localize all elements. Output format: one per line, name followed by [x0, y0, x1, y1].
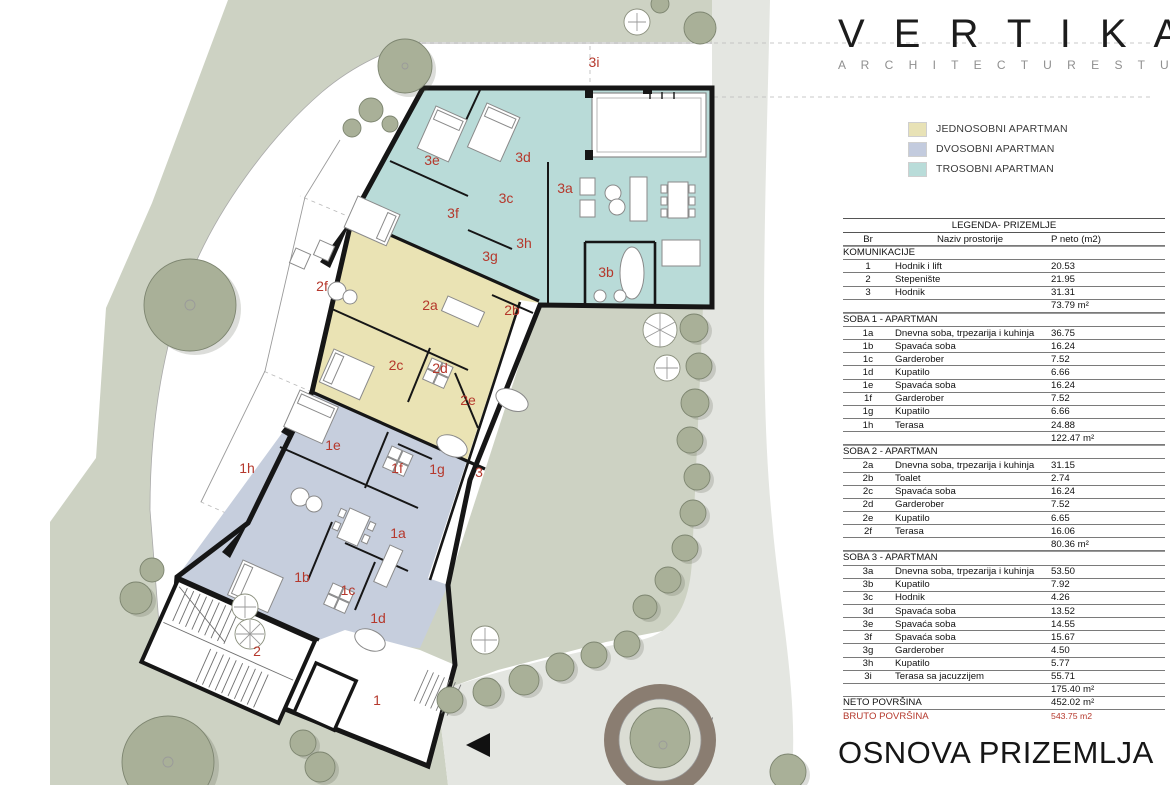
room-label-3: 3	[475, 464, 483, 480]
cell-room-id: 2d	[843, 499, 893, 510]
cell-room-area: 6.66	[1045, 406, 1165, 417]
cell-room-name: Kupatilo	[893, 406, 1045, 417]
cell-room-area: 4.26	[1045, 592, 1165, 603]
table-row: NETO POVRŠINA452.02 m²	[843, 697, 1165, 710]
cell-room-name: Garderober	[893, 645, 1045, 656]
jacuzzi-pool	[585, 88, 706, 160]
table-row: 2bToalet2.74	[843, 473, 1165, 486]
room-label-1b: 1b	[294, 569, 310, 585]
cell-room-name: Spavaća soba	[893, 632, 1045, 643]
cell-room-area: 31.31	[1045, 287, 1165, 298]
brand-logo: V E R T I K A L Λ	[838, 12, 1138, 56]
room-label-1f: 1f	[391, 460, 403, 476]
table-row: BRUTO POVRŠINA543.75 m2	[843, 710, 1165, 722]
cell-room-name: Spavaća soba	[893, 380, 1045, 391]
cell-room-name: Toalet	[893, 473, 1045, 484]
cell-room-id: 3e	[843, 619, 893, 630]
cell-room-id: 1d	[843, 367, 893, 378]
cell-room-area: 7.52	[1045, 393, 1165, 404]
total-value: 452.02 m²	[1045, 697, 1165, 708]
col-header-naziv: Naziv prostorije	[893, 234, 1045, 245]
cell-room-id: 1g	[843, 406, 893, 417]
table-row: 3eSpavaća soba14.55	[843, 618, 1165, 631]
table-row: 3bKupatilo7.92	[843, 579, 1165, 592]
cell-room-area: 36.75	[1045, 328, 1165, 339]
cell-room-id: 2	[843, 274, 893, 285]
room-label-3e: 3e	[424, 152, 440, 168]
room-label-1d: 1d	[370, 610, 386, 626]
apartment-type-legend: JEDNOSOBNI APARTMANDVOSOBNI APARTMANTROS…	[908, 119, 1068, 179]
cell-room-area: 55.71	[1045, 671, 1165, 682]
room-area-table: LEGENDA- PRIZEMLJEBrNaziv prostorijeP ne…	[843, 218, 1165, 722]
cell-room-id: 3b	[843, 579, 893, 590]
cell-room-area: 13.52	[1045, 606, 1165, 617]
legend-item: JEDNOSOBNI APARTMAN	[908, 119, 1068, 139]
cell-room-id: 1f	[843, 393, 893, 404]
table-row: 3gGarderober4.50	[843, 644, 1165, 657]
cell-room-id: 3a	[843, 566, 893, 577]
cell-section-subtotal: 80.36 m²	[1045, 539, 1165, 550]
cell-room-id: 2f	[843, 526, 893, 537]
cell-room-name: Terasa	[893, 526, 1045, 537]
col-header-pneto: P neto (m2)	[1045, 234, 1165, 245]
cell-room-name: Spavaća soba	[893, 606, 1045, 617]
drawing-title: OSNOVA PRIZEMLJA	[838, 735, 1138, 771]
cell-room-area: 21.95	[1045, 274, 1165, 285]
cell-room-id: 3g	[843, 645, 893, 656]
cell-room-area: 53.50	[1045, 566, 1165, 577]
table-row: 3hKupatilo5.77	[843, 658, 1165, 671]
table-row: 3aDnevna soba, trpezarija i kuhinja53.50	[843, 566, 1165, 579]
room-label-1a: 1a	[390, 525, 406, 541]
room-label-3a: 3a	[557, 180, 573, 196]
total-value: 543.75 m2	[1045, 711, 1165, 721]
legend-item: DVOSOBNI APARTMAN	[908, 139, 1068, 159]
total-label: BRUTO POVRŠINA	[843, 711, 1045, 722]
cell-room-area: 16.06	[1045, 526, 1165, 537]
room-label-2c: 2c	[389, 357, 404, 373]
cell-room-area: 2.74	[1045, 473, 1165, 484]
cell-room-area: 14.55	[1045, 619, 1165, 630]
cell-room-area: 6.65	[1045, 513, 1165, 524]
cell-room-area: 6.66	[1045, 367, 1165, 378]
cell-room-id: 2c	[843, 486, 893, 497]
cell-room-name: Terasa sa jacuzzijem	[893, 671, 1045, 682]
legend-item-label: JEDNOSOBNI APARTMAN	[936, 123, 1068, 135]
cell-room-id: 2a	[843, 460, 893, 471]
col-header-br: Br	[843, 234, 893, 245]
room-label-1h: 1h	[239, 460, 255, 476]
room-label-1c: 1c	[341, 582, 356, 598]
cell-section-subtotal: 175.40 m²	[1045, 684, 1165, 695]
cell-room-name: Garderober	[893, 393, 1045, 404]
cell-room-id: 1c	[843, 354, 893, 365]
cell-room-name: Dnevna soba, trpezarija i kuhinja	[893, 460, 1045, 471]
table-row: 122.47 m²	[843, 432, 1165, 445]
room-label-2a: 2a	[422, 297, 438, 313]
table-row: 3fSpavaća soba15.67	[843, 631, 1165, 644]
cell-room-name: Hodnik	[893, 287, 1045, 298]
table-row: 2aDnevna soba, trpezarija i kuhinja31.15	[843, 459, 1165, 472]
cell-room-area: 16.24	[1045, 380, 1165, 391]
legend-item-label: TROSOBNI APARTMAN	[936, 163, 1054, 175]
table-row: 1dKupatilo6.66	[843, 366, 1165, 379]
cell-room-area: 16.24	[1045, 341, 1165, 352]
table-row: 1eSpavaća soba16.24	[843, 380, 1165, 393]
table-section-header: SOBA 2 - APARTMAN	[843, 445, 1165, 459]
table-row: 1gKupatilo6.66	[843, 406, 1165, 419]
legend-item: TROSOBNI APARTMAN	[908, 159, 1068, 179]
cell-room-name: Spavaća soba	[893, 486, 1045, 497]
table-section-header: SOBA 3 - APARTMAN	[843, 551, 1165, 565]
total-label: NETO POVRŠINA	[843, 697, 1045, 708]
table-row: 3dSpavaća soba13.52	[843, 605, 1165, 618]
cell-room-id: 1	[843, 261, 893, 272]
room-label-1g: 1g	[429, 461, 445, 477]
cell-room-name: Hodnik i lift	[893, 261, 1045, 272]
table-row: 2eKupatilo6.65	[843, 512, 1165, 525]
cell-room-name: Dnevna soba, trpezarija i kuhinja	[893, 566, 1045, 577]
cell-room-area: 5.77	[1045, 658, 1165, 669]
cell-room-name: Kupatilo	[893, 579, 1045, 590]
cell-room-name: Garderober	[893, 499, 1045, 510]
table-row: 1fGarderober7.52	[843, 393, 1165, 406]
room-label-1e: 1e	[325, 437, 341, 453]
cell-room-area: 7.92	[1045, 579, 1165, 590]
cell-room-id: 1b	[843, 341, 893, 352]
cell-section-subtotal: 122.47 m²	[1045, 433, 1165, 444]
room-label-1: 1	[373, 692, 381, 708]
legend-item-label: DVOSOBNI APARTMAN	[936, 143, 1055, 155]
cell-room-id: 2e	[843, 513, 893, 524]
cell-room-area: 15.67	[1045, 632, 1165, 643]
cell-room-area: 7.52	[1045, 499, 1165, 510]
cell-room-name: Spavaća soba	[893, 341, 1045, 352]
room-label-2d: 2d	[432, 360, 448, 376]
cell-room-name: Garderober	[893, 354, 1045, 365]
room-label-3i: 3i	[589, 54, 600, 70]
cell-room-id: 3h	[843, 658, 893, 669]
table-section-header: SOBA 1 - APARTMAN	[843, 313, 1165, 327]
cell-room-area: 7.52	[1045, 354, 1165, 365]
cell-room-id: 1h	[843, 420, 893, 431]
legend-color-chip	[908, 142, 927, 157]
cell-room-name: Kupatilo	[893, 513, 1045, 524]
brand-block: V E R T I K A L Λ A R C H I T E C T U R …	[838, 12, 1138, 72]
table-row: 2Stepenište21.95	[843, 273, 1165, 286]
table-row: 175.40 m²	[843, 684, 1165, 697]
table-row: 1bSpavaća soba16.24	[843, 340, 1165, 353]
room-label-3g: 3g	[482, 248, 498, 264]
legend-color-chip	[908, 122, 927, 137]
room-label-3b: 3b	[598, 264, 614, 280]
cell-room-area: 20.53	[1045, 261, 1165, 272]
cell-room-id: 3i	[843, 671, 893, 682]
table-row: 3Hodnik31.31	[843, 287, 1165, 300]
table-row: 80.36 m²	[843, 538, 1165, 551]
cell-room-name: Hodnik	[893, 592, 1045, 603]
room-label-3c: 3c	[499, 190, 514, 206]
table-row: 1cGarderober7.52	[843, 353, 1165, 366]
room-label-2: 2	[253, 643, 261, 659]
cell-room-id: 3c	[843, 592, 893, 603]
room-label-2b: 2b	[504, 302, 520, 318]
cell-section-subtotal: 73.79 m²	[1045, 300, 1165, 311]
table-title: LEGENDA- PRIZEMLJE	[843, 218, 1165, 233]
table-row: 1hTerasa24.88	[843, 419, 1165, 432]
brand-subtitle: A R C H I T E C T U R E S T U D I O	[838, 58, 1138, 72]
table-row: 1aDnevna soba, trpezarija i kuhinja36.75	[843, 327, 1165, 340]
floor-plan-sheet: 3i3e3d3c3a3f3g3h3b2f2a2b2c2d2e1e1h1f1g31…	[0, 0, 1170, 785]
cell-room-area: 31.15	[1045, 460, 1165, 471]
table-row: 1Hodnik i lift20.53	[843, 260, 1165, 273]
cell-room-id: 3	[843, 287, 893, 298]
cell-room-id: 1a	[843, 328, 893, 339]
room-label-3d: 3d	[515, 149, 531, 165]
cell-room-name: Dnevna soba, trpezarija i kuhinja	[893, 328, 1045, 339]
cell-room-name: Kupatilo	[893, 658, 1045, 669]
table-row: 2dGarderober7.52	[843, 499, 1165, 512]
room-label-3f: 3f	[447, 205, 459, 221]
room-label-2e: 2e	[460, 392, 476, 408]
table-row: BrNaziv prostorijeP neto (m2)	[843, 233, 1165, 246]
table-row: 3cHodnik4.26	[843, 592, 1165, 605]
table-section-header: KOMUNIKACIJE	[843, 246, 1165, 260]
cell-room-id: 3f	[843, 632, 893, 643]
cell-room-id: 2b	[843, 473, 893, 484]
cell-room-name: Stepenište	[893, 274, 1045, 285]
cell-room-id: 3d	[843, 606, 893, 617]
table-row: 2fTerasa16.06	[843, 525, 1165, 538]
cell-room-name: Kupatilo	[893, 367, 1045, 378]
table-row: 2cSpavaća soba16.24	[843, 486, 1165, 499]
room-label-2f: 2f	[316, 278, 328, 294]
cell-room-name: Spavaća soba	[893, 619, 1045, 630]
cell-room-area: 16.24	[1045, 486, 1165, 497]
cell-room-name: Terasa	[893, 420, 1045, 431]
cell-room-area: 24.88	[1045, 420, 1165, 431]
table-row: 73.79 m²	[843, 300, 1165, 313]
table-row: 3iTerasa sa jacuzzijem55.71	[843, 671, 1165, 684]
cell-room-area: 4.50	[1045, 645, 1165, 656]
room-label-3h: 3h	[516, 235, 532, 251]
legend-color-chip	[908, 162, 927, 177]
cell-room-id: 1e	[843, 380, 893, 391]
